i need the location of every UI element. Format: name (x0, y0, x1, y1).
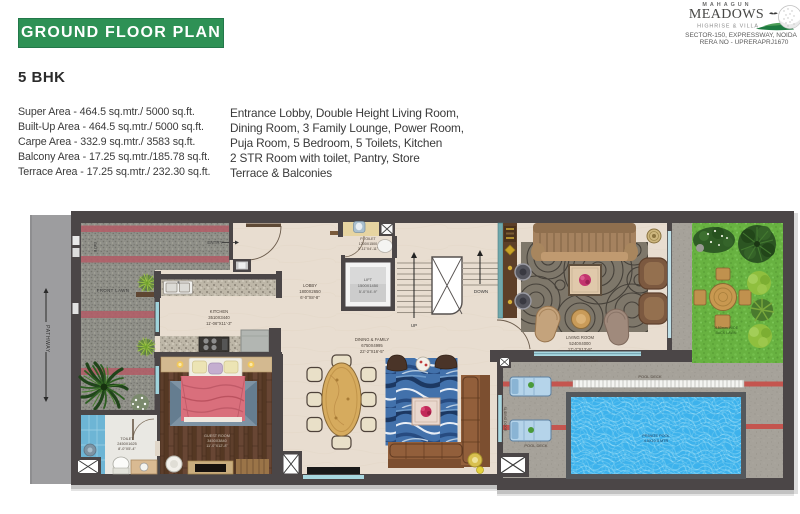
svg-text:8'-0"X5'-4": 8'-0"X5'-4" (118, 447, 136, 451)
svg-text:P.TOILET: P.TOILET (360, 237, 376, 241)
svg-text:POOL DECK: POOL DECK (524, 443, 548, 448)
svg-text:11'-0"X12'-8": 11'-0"X12'-8" (206, 444, 228, 448)
svg-text:5240X4000: 5240X4000 (569, 341, 591, 346)
svg-text:BACK LAWN: BACK LAWN (715, 331, 736, 335)
svg-text:5'-0"X4'-9": 5'-0"X4'-9" (359, 289, 378, 294)
svg-text:SLIDING DOOR: SLIDING DOOR (570, 359, 598, 363)
svg-text:3'-11"X4'-11": 3'-11"X4'-11" (358, 247, 379, 251)
svg-text:FRONT LAWN: FRONT LAWN (97, 288, 130, 293)
svg-text:1500X1450: 1500X1450 (358, 283, 379, 288)
svg-text:UP: UP (411, 323, 417, 328)
svg-text:LOBBY: LOBBY (303, 283, 317, 288)
svg-text:KITCHEN: KITCHEN (210, 309, 228, 314)
svg-text:LIFT: LIFT (364, 277, 373, 282)
svg-text:GATE: GATE (93, 242, 98, 253)
svg-text:PATHWAY: PATHWAY (44, 325, 50, 353)
svg-text:3150mm WIDE: 3150mm WIDE (714, 326, 739, 330)
svg-text:DINING & FAMILY: DINING & FAMILY (355, 337, 390, 342)
svg-text:4.5X10.5 MTR: 4.5X10.5 MTR (644, 439, 669, 443)
svg-text:11'-06"X11'-3": 11'-06"X11'-3" (206, 321, 232, 326)
svg-text:TOILET: TOILET (120, 437, 134, 441)
svg-text:1800X2650: 1800X2650 (299, 289, 321, 294)
svg-text:ENTRY: ENTRY (207, 240, 222, 245)
svg-text:LIVING ROOM: LIVING ROOM (566, 335, 594, 340)
svg-text:POOL DECK: POOL DECK (638, 374, 662, 379)
svg-text:22'-2"X16'-5": 22'-2"X16'-5" (360, 349, 385, 354)
svg-text:1200X1500: 1200X1500 (359, 242, 377, 246)
svg-text:PRIVATE POOL: PRIVATE POOL (642, 434, 669, 438)
svg-text:2450X1625: 2450X1625 (117, 442, 136, 446)
svg-text:17'-2"X13'-5": 17'-2"X13'-5" (568, 347, 593, 352)
svg-text:SLIDING DOOR: SLIDING DOOR (503, 407, 507, 432)
svg-text:3510X3440: 3510X3440 (208, 315, 230, 320)
svg-text:DOWN: DOWN (474, 289, 488, 294)
svg-text:6750X4995: 6750X4995 (361, 343, 383, 348)
svg-text:GUEST ROOM: GUEST ROOM (204, 434, 230, 438)
svg-text:3450X3840: 3450X3840 (207, 439, 226, 443)
svg-text:6'-0"X8'-8": 6'-0"X8'-8" (300, 295, 320, 300)
